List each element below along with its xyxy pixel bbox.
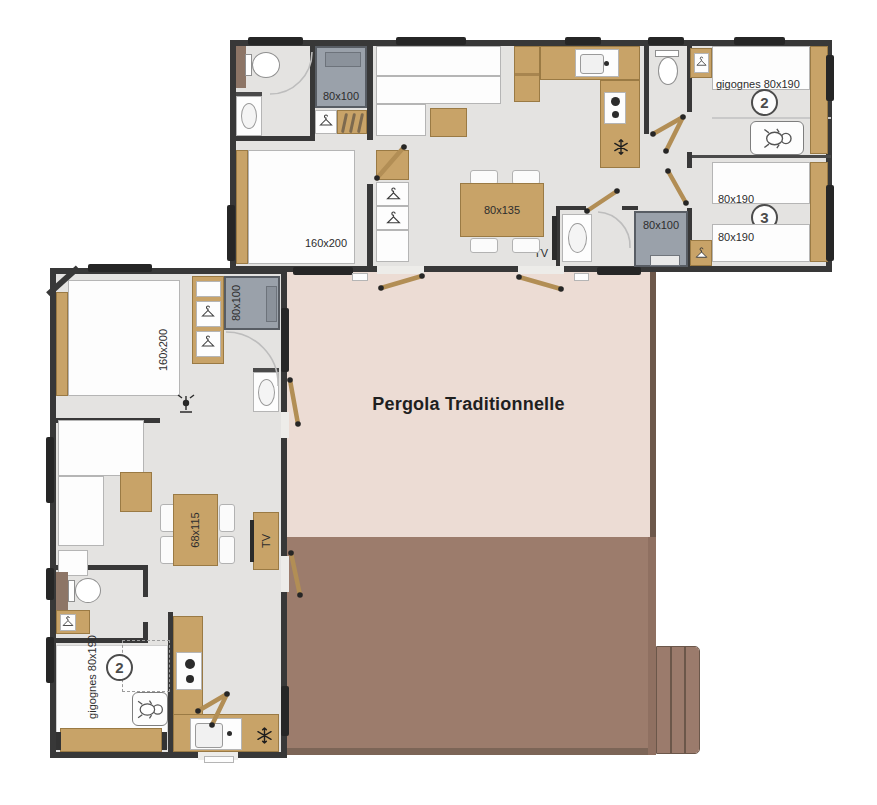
door-opening (281, 556, 289, 592)
pergola-area: Pergola Traditionnelle (287, 272, 650, 537)
kitchen-sink (575, 49, 619, 77)
hanger-icon (200, 305, 216, 319)
sofa-back (376, 46, 501, 76)
bedroom2-number: 2 (760, 94, 768, 111)
sink-basin-icon (568, 223, 587, 253)
chair (512, 238, 540, 253)
shower-left-label: 80x100 (323, 89, 359, 106)
wardrobe-cell (376, 206, 409, 230)
bathroom-sink (253, 372, 279, 412)
burner-icon (186, 675, 194, 683)
floor-plan: Pergola Traditionnelle (0, 0, 877, 805)
shower-left: 80x100 (315, 46, 367, 108)
window (597, 267, 641, 275)
fridge-snowflake-icon (255, 726, 274, 745)
sink-basin-icon (258, 379, 275, 406)
door-opening (281, 412, 289, 438)
wall (644, 46, 649, 134)
wardrobe-top (376, 150, 409, 180)
single-bed-label: 80x190 (718, 192, 754, 206)
pergola-edge (650, 272, 656, 537)
window (248, 37, 303, 45)
baby-cot (750, 121, 804, 155)
entry-wardrobe (690, 48, 712, 78)
coffee-table (430, 108, 467, 137)
hanger-icon (385, 187, 402, 202)
toilet-icon (655, 50, 679, 57)
window (46, 437, 54, 503)
window (281, 686, 289, 736)
tv-screen (250, 520, 254, 562)
shelf-line (515, 73, 539, 76)
bedroom2-badge: 2 (106, 654, 133, 681)
burner-icon (612, 111, 619, 118)
wc-vanity (56, 610, 90, 634)
deck-edge-right (648, 537, 656, 755)
toilet-icon (75, 578, 101, 603)
master-bed-label: 160x200 (286, 236, 366, 250)
shower-door-icon (266, 286, 277, 322)
toilet-icon (245, 54, 252, 76)
pergola-title: Pergola Traditionnelle (372, 394, 564, 415)
clothes-rack (337, 110, 367, 134)
window (648, 37, 684, 45)
clothes-icon (357, 113, 364, 133)
window (565, 37, 601, 45)
wardrobe-cell (376, 182, 409, 206)
sofa-seat (376, 76, 501, 104)
kitchen-cabinet (514, 46, 540, 102)
sofa-chaise (58, 476, 104, 546)
burner-icon (185, 659, 195, 669)
burner-icon (611, 97, 620, 106)
wall-thin (692, 155, 831, 158)
wardrobe-cell (315, 110, 337, 134)
bench-cap (162, 732, 167, 750)
wall (236, 136, 315, 141)
hanger-icon (61, 616, 75, 628)
window (826, 55, 834, 101)
clothes-icon (349, 113, 356, 133)
shower-right: 80x100 (634, 211, 688, 267)
door-threshold (574, 273, 589, 281)
shower-right-label: 80x100 (643, 213, 679, 232)
window (734, 37, 785, 45)
bedroom3-wardrobe (690, 240, 712, 266)
hanger-icon (385, 211, 402, 226)
door-opening (518, 266, 564, 274)
fridge-snowflake-icon (612, 138, 630, 156)
faucet-icon (227, 731, 232, 736)
deck-area (287, 537, 656, 755)
dining-table-label: 68x115 (188, 490, 202, 570)
upper-chalet-unit: 80x100 160x200 (230, 40, 832, 272)
bedroom2-badge: 2 (751, 89, 778, 116)
bathroom-sink (236, 96, 262, 136)
tv-label: TV (259, 501, 273, 581)
trundle-beds-label: gigognes 80x190 (716, 77, 800, 91)
baby-cot (132, 692, 168, 726)
wardrobe-cell (376, 230, 409, 262)
bed-bench (60, 728, 162, 752)
chair (470, 238, 498, 253)
wardrobe-cell (196, 281, 221, 297)
deck-shadow (287, 748, 656, 755)
bed-headboard (236, 150, 248, 264)
chair (219, 536, 235, 564)
window (227, 205, 235, 261)
coffee-table (120, 472, 152, 512)
sink-basin-icon (241, 103, 257, 129)
shower-tray-icon (650, 255, 680, 266)
window (46, 637, 54, 683)
window (826, 185, 834, 261)
window (293, 267, 353, 275)
step-2 (670, 647, 685, 753)
hanger-icon (695, 56, 708, 68)
hanger-icon (694, 247, 709, 260)
sink-bowl-icon (580, 54, 604, 74)
sink-bowl-icon (195, 723, 223, 748)
toilet-icon (252, 52, 280, 78)
door-opening (377, 266, 424, 274)
wall (367, 46, 373, 140)
hanger-icon (318, 114, 334, 128)
wall (622, 206, 638, 210)
bathroom-sink (562, 214, 592, 262)
stove (604, 92, 626, 124)
dining-table: 80x135 (460, 183, 544, 237)
sofa (58, 420, 144, 476)
step-1 (657, 647, 670, 753)
step-3 (684, 647, 699, 753)
wardrobe-column (192, 276, 224, 364)
shower-tray-icon (325, 52, 361, 67)
wall (556, 206, 586, 210)
baby-icon (761, 126, 795, 151)
kitchen-sink (190, 718, 242, 750)
door-threshold (352, 273, 368, 281)
shower-label: 80x100 (229, 263, 243, 343)
bed-headboard (56, 292, 68, 396)
hanger-icon (200, 335, 216, 349)
tv-screen (552, 216, 557, 260)
deck-steps (656, 646, 700, 754)
master-bed-label: 160x200 (156, 310, 170, 390)
clothes-icon (341, 113, 348, 133)
window (281, 308, 289, 372)
window (88, 264, 152, 272)
stove (176, 652, 202, 690)
wc-wall-strip (56, 572, 68, 610)
wall (143, 565, 148, 597)
bedroom2-number: 2 (115, 659, 123, 676)
toilet-icon (68, 580, 75, 602)
faucet-icon (604, 61, 609, 66)
chair (219, 504, 235, 532)
sofa-chaise (376, 104, 426, 136)
lower-chalet-unit: 160x200 80x100 68x115 T (50, 268, 287, 758)
single-bed-label: 80x190 (718, 230, 754, 244)
toilet-icon (658, 57, 678, 85)
trundle-beds-label: gigognes 80x190 (85, 632, 99, 722)
window (46, 568, 54, 600)
dining-table-label: 80x135 (484, 203, 520, 217)
window (396, 37, 466, 45)
baby-icon (135, 698, 166, 721)
door-threshold (204, 756, 234, 763)
wall (367, 184, 373, 267)
bench-cap (56, 732, 61, 750)
